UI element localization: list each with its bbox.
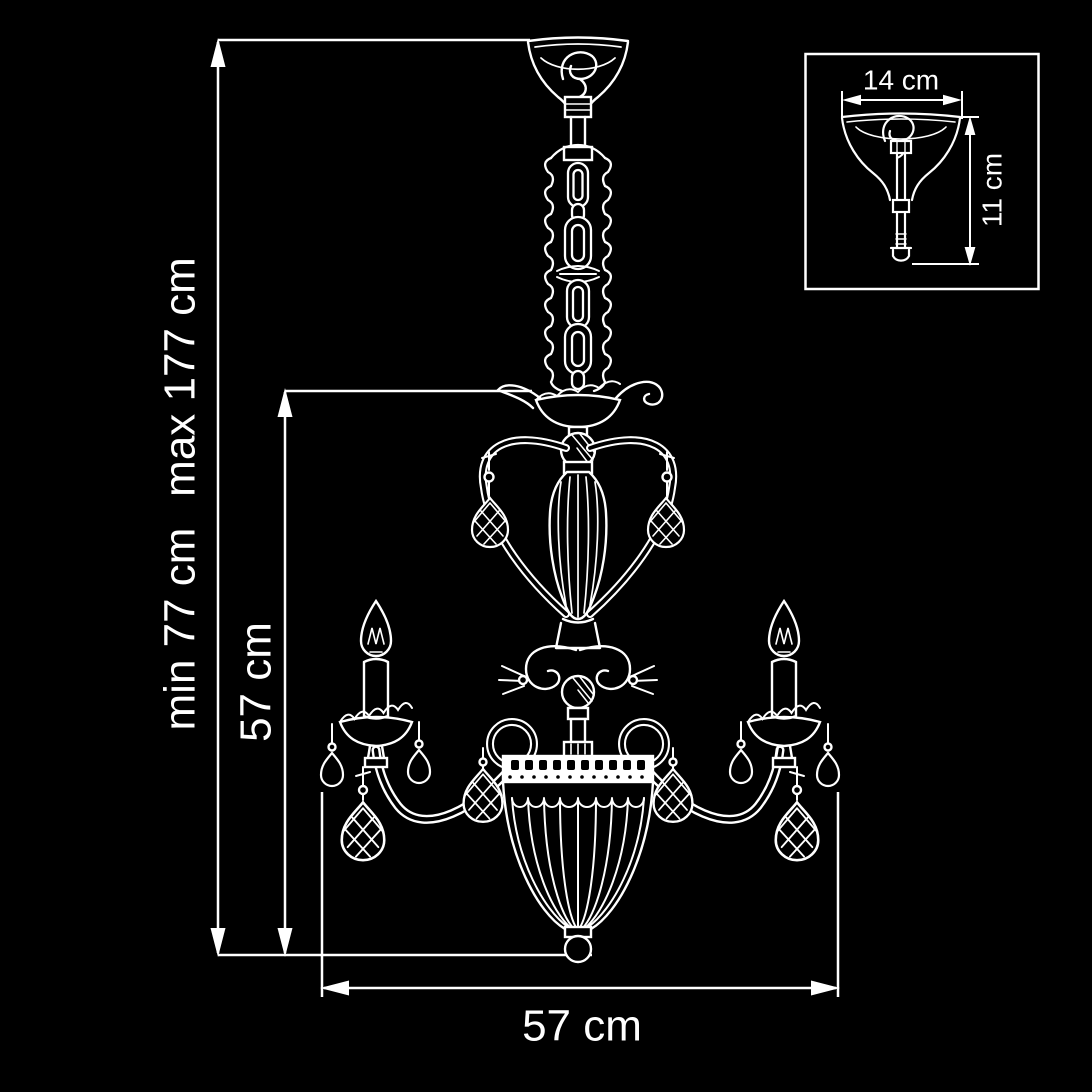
upper-crystal-left: [472, 452, 508, 547]
crystal-bead: [793, 786, 801, 794]
arrow-down-icon: [278, 928, 293, 957]
canopy-plate: [528, 38, 628, 42]
inset-canopy-drawing: [842, 114, 960, 261]
bobeche-pan: [748, 717, 820, 746]
crystal-bead: [670, 759, 677, 766]
bobeche-crystal-right: [776, 767, 818, 860]
canopy-plate-inner: [535, 44, 621, 47]
canopy-height-label: 11 cm: [977, 153, 1008, 227]
canopy-cup-line: [856, 127, 946, 139]
rod-band: [564, 147, 592, 160]
arrow-left-icon: [320, 981, 349, 996]
teardrop: [817, 753, 839, 786]
arrow-up-icon: [278, 388, 293, 417]
drop-bead: [738, 741, 745, 748]
crown-leaf-left: [498, 385, 540, 408]
rod-tip: [891, 248, 911, 261]
ceiling-canopy: [528, 38, 628, 161]
canopy-cup-line: [541, 58, 615, 69]
chain-links: [557, 163, 599, 389]
bobeche-crystal-left: [342, 767, 384, 860]
canopy-width-label: 14 cm: [863, 65, 939, 96]
dimension-body-height: [278, 388, 533, 957]
canopy-bell: [912, 118, 960, 200]
crystal-bead: [480, 759, 487, 766]
socket-top: [568, 708, 588, 719]
canopy-collar: [565, 97, 591, 117]
crown-swirl-right: [616, 382, 662, 405]
chain-link-inner: [574, 170, 583, 200]
arrow-up-icon: [211, 38, 226, 67]
crown-bobeche: [498, 381, 662, 437]
upper-crystal-right: [648, 452, 684, 547]
socket-stem: [571, 719, 585, 742]
chandelier-dimension-diagram: max 177 cm min 77 cm 57 cm 57 cm: [0, 0, 1092, 1092]
chain-link-inner: [572, 225, 584, 261]
faceted-crystal: [776, 802, 818, 860]
teardrop: [730, 750, 752, 783]
dimension-body-width: [320, 792, 840, 997]
candle-bulb: [769, 601, 799, 656]
drop-bead: [416, 741, 423, 748]
arrow-up-icon: [965, 116, 976, 135]
finial-ball: [565, 936, 591, 962]
drop-bead: [825, 744, 832, 751]
chain-link: [572, 371, 584, 389]
teardrop: [408, 750, 430, 783]
arrow-right-icon: [943, 95, 962, 105]
vase-base: [556, 619, 600, 648]
teardrop: [321, 753, 343, 786]
basket-bowl: [503, 756, 653, 962]
arrow-down-icon: [211, 928, 226, 957]
faceted-crystal: [342, 802, 384, 860]
chandelier-drawing: [321, 38, 839, 963]
crystal-bead: [485, 473, 494, 482]
chain-link-inner: [573, 287, 583, 321]
candle-left: [340, 601, 412, 767]
central-vase: [550, 462, 607, 648]
dimension-canopy-height: [912, 116, 979, 266]
crystal-bead: [359, 786, 367, 794]
chain-link-inner: [572, 332, 584, 366]
bobeche-band: [773, 758, 795, 767]
crown-cup: [536, 395, 620, 427]
bobeche-pan: [340, 717, 412, 746]
diagram-canvas: max 177 cm min 77 cm 57 cm 57 cm: [0, 0, 1092, 1092]
drop-bead: [329, 744, 336, 751]
canopy-plate-inner: [847, 119, 955, 122]
body-height-label: 57 cm: [232, 622, 281, 742]
candle-bulb: [361, 601, 391, 656]
faceted-crystal: [648, 498, 684, 547]
finial-bead-left: [519, 676, 527, 684]
lower-scrolls: [499, 646, 657, 757]
inset-detail-box: 14 cm 11 cm: [806, 54, 1039, 289]
faceted-crystal: [472, 498, 508, 547]
height-min-label: min 77 cm: [156, 528, 205, 731]
dimension-height-range: [211, 38, 593, 957]
arrow-left-icon: [842, 95, 861, 105]
body-width-label: 57 cm: [522, 1002, 642, 1051]
canopy-hook-tail: [577, 79, 586, 98]
candle-right: [748, 601, 820, 767]
finial-bead-right: [629, 676, 637, 684]
bowl-ribs: [512, 798, 644, 929]
height-max-label: max 177 cm: [156, 257, 205, 497]
arrow-right-icon: [811, 981, 840, 996]
canopy-collar: [891, 141, 911, 153]
rod-collar: [893, 200, 909, 212]
canopy-hook-icon: [562, 52, 597, 79]
crystal-bead: [663, 473, 672, 482]
bobeche-band: [365, 758, 387, 767]
